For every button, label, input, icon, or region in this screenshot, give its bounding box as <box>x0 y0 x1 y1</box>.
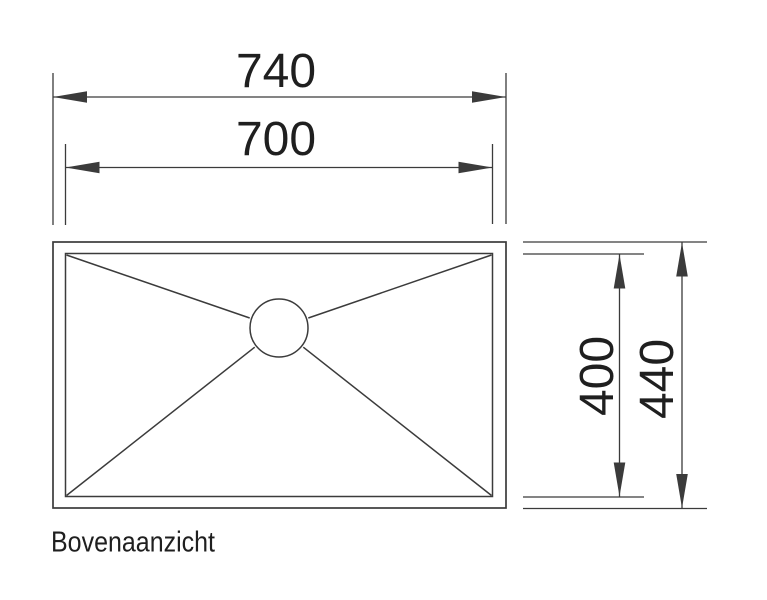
diagonal-top-right <box>308 255 491 318</box>
dim-value-700: 700 <box>236 113 316 166</box>
arrow-440-top-icon <box>676 243 688 277</box>
arrow-400-bottom-icon <box>614 463 626 497</box>
sink-inner-rect <box>66 254 493 497</box>
arrow-440-bottom-icon <box>676 474 688 508</box>
diagonal-bottom-right <box>303 347 491 495</box>
dim-value-400: 400 <box>571 336 624 416</box>
arrow-740-left-icon <box>53 91 87 103</box>
diagonal-top-left <box>67 255 250 318</box>
arrow-740-right-icon <box>472 91 506 103</box>
drain-circle <box>250 299 308 357</box>
diagonal-bottom-left <box>67 347 255 495</box>
sink-outer-rect <box>53 242 506 508</box>
arrow-400-top-icon <box>614 255 626 289</box>
arrow-700-left-icon <box>66 162 100 174</box>
dimension-texts: 740 700 400 440 Bovenaanzicht <box>51 45 684 559</box>
drawing-linework <box>53 73 707 509</box>
dimension-arrowheads <box>53 91 688 508</box>
view-caption: Bovenaanzicht <box>51 527 215 559</box>
arrow-700-right-icon <box>459 162 493 174</box>
technical-drawing-page: 740 700 400 440 Bovenaanzicht <box>0 0 767 600</box>
dim-value-440: 440 <box>631 339 684 419</box>
sink-top-view-drawing: 740 700 400 440 Bovenaanzicht <box>0 0 767 600</box>
dim-value-740: 740 <box>236 45 316 98</box>
